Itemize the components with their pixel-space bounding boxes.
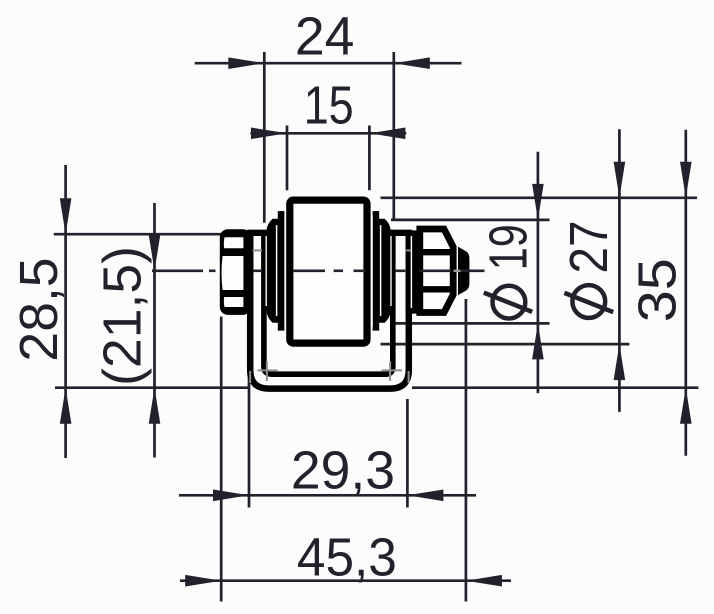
svg-text:29,3: 29,3 [291,441,395,500]
svg-text:19: 19 [479,224,538,270]
svg-text:27: 27 [560,221,619,274]
svg-text:45,3: 45,3 [297,529,397,588]
svg-text:24: 24 [295,7,355,66]
svg-text:35: 35 [629,258,688,322]
svg-text:15: 15 [304,76,354,135]
svg-text:(21,5): (21,5) [94,246,153,386]
svg-text:28,5: 28,5 [10,257,69,361]
